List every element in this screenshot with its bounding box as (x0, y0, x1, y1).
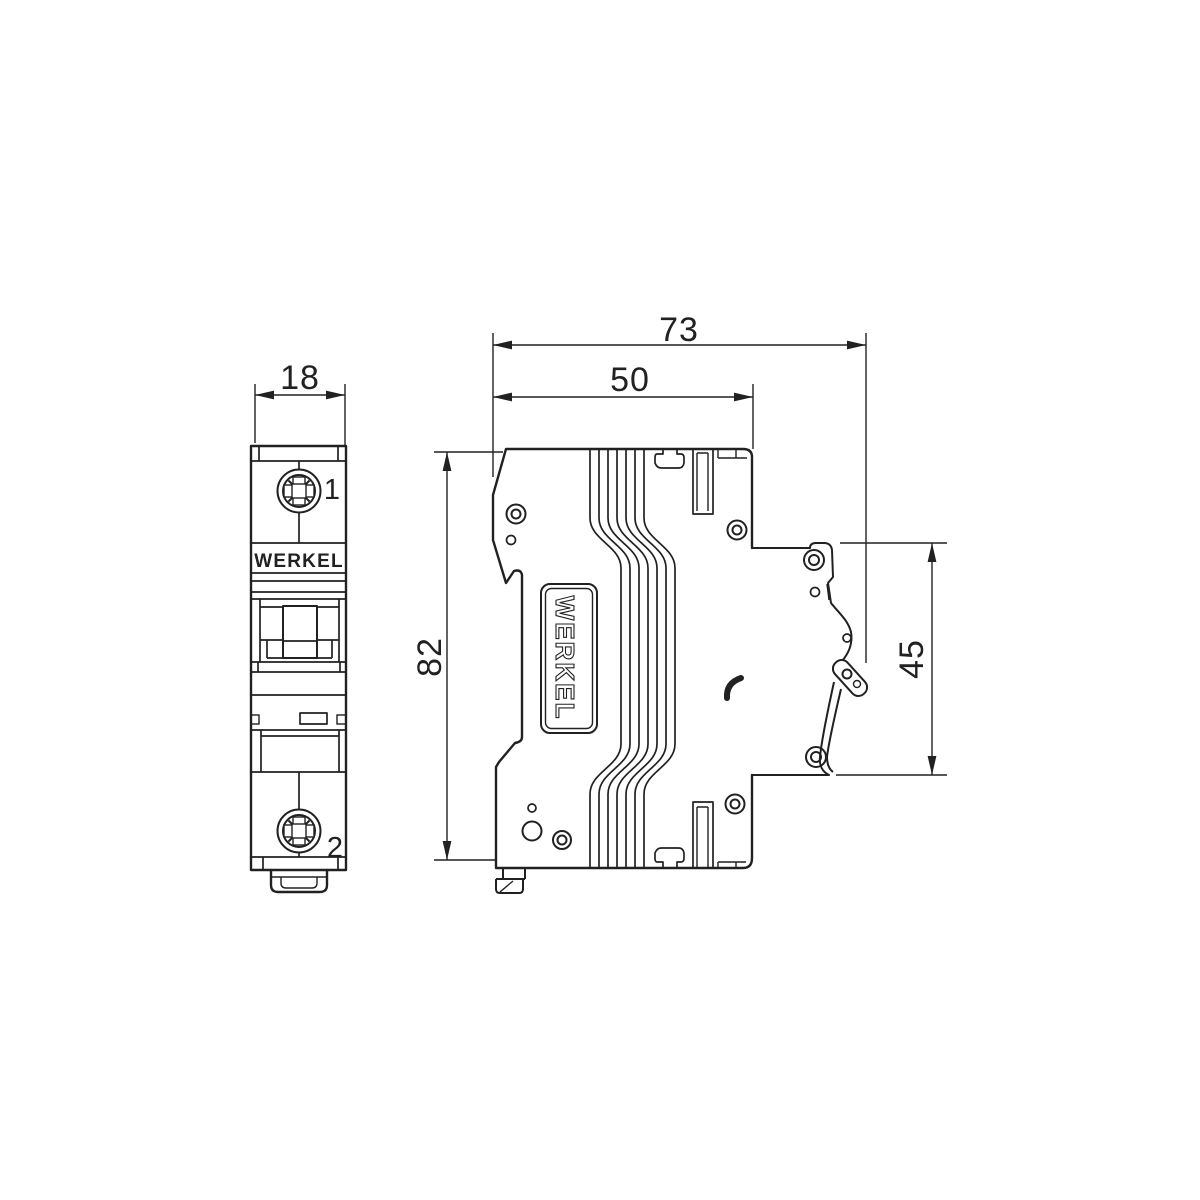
front-lower-panel (251, 730, 346, 772)
side-brand-label: WERKEL (550, 596, 580, 721)
din-release-tab (496, 868, 525, 893)
dimension-82: 82 (411, 452, 503, 860)
dimension-73: 73 (493, 311, 866, 663)
dim-82-label: 82 (411, 637, 449, 677)
dimension-18: 18 (255, 359, 345, 446)
din-latch (752, 543, 870, 775)
front-toggle-switch (251, 599, 346, 672)
seam-lines (590, 450, 675, 868)
front-terminal-screw-top (278, 470, 321, 513)
front-bands (251, 581, 346, 599)
dim-73-label: 73 (659, 311, 699, 349)
crescent-detail (727, 678, 741, 698)
side-brand-plate: WERKEL (541, 584, 597, 733)
front-indicator-window (251, 713, 346, 730)
front-view: 1 WERKEL (251, 446, 346, 892)
side-view: WERKEL (493, 449, 870, 893)
front-top-cap (251, 446, 346, 461)
dimension-50: 50 (493, 361, 753, 449)
side-top-details (655, 450, 747, 514)
toggle-lever (283, 606, 317, 658)
terminal-2-label: 2 (327, 832, 343, 864)
front-terminal-screw-bottom (278, 810, 321, 853)
drawing-canvas: 1 WERKEL (0, 0, 1200, 1200)
front-brand-plate: WERKEL (251, 543, 346, 573)
terminal-1-label: 1 (324, 474, 340, 506)
dim-45-label: 45 (893, 639, 931, 679)
dimension-45: 45 (836, 543, 947, 775)
front-bottom-tab (271, 870, 327, 892)
dim-50-label: 50 (610, 361, 650, 399)
side-bottom-details (655, 802, 746, 868)
front-brand-label: WERKEL (254, 551, 344, 572)
dim-18-label: 18 (280, 359, 320, 397)
technical-drawing: 1 WERKEL (0, 0, 1200, 1200)
